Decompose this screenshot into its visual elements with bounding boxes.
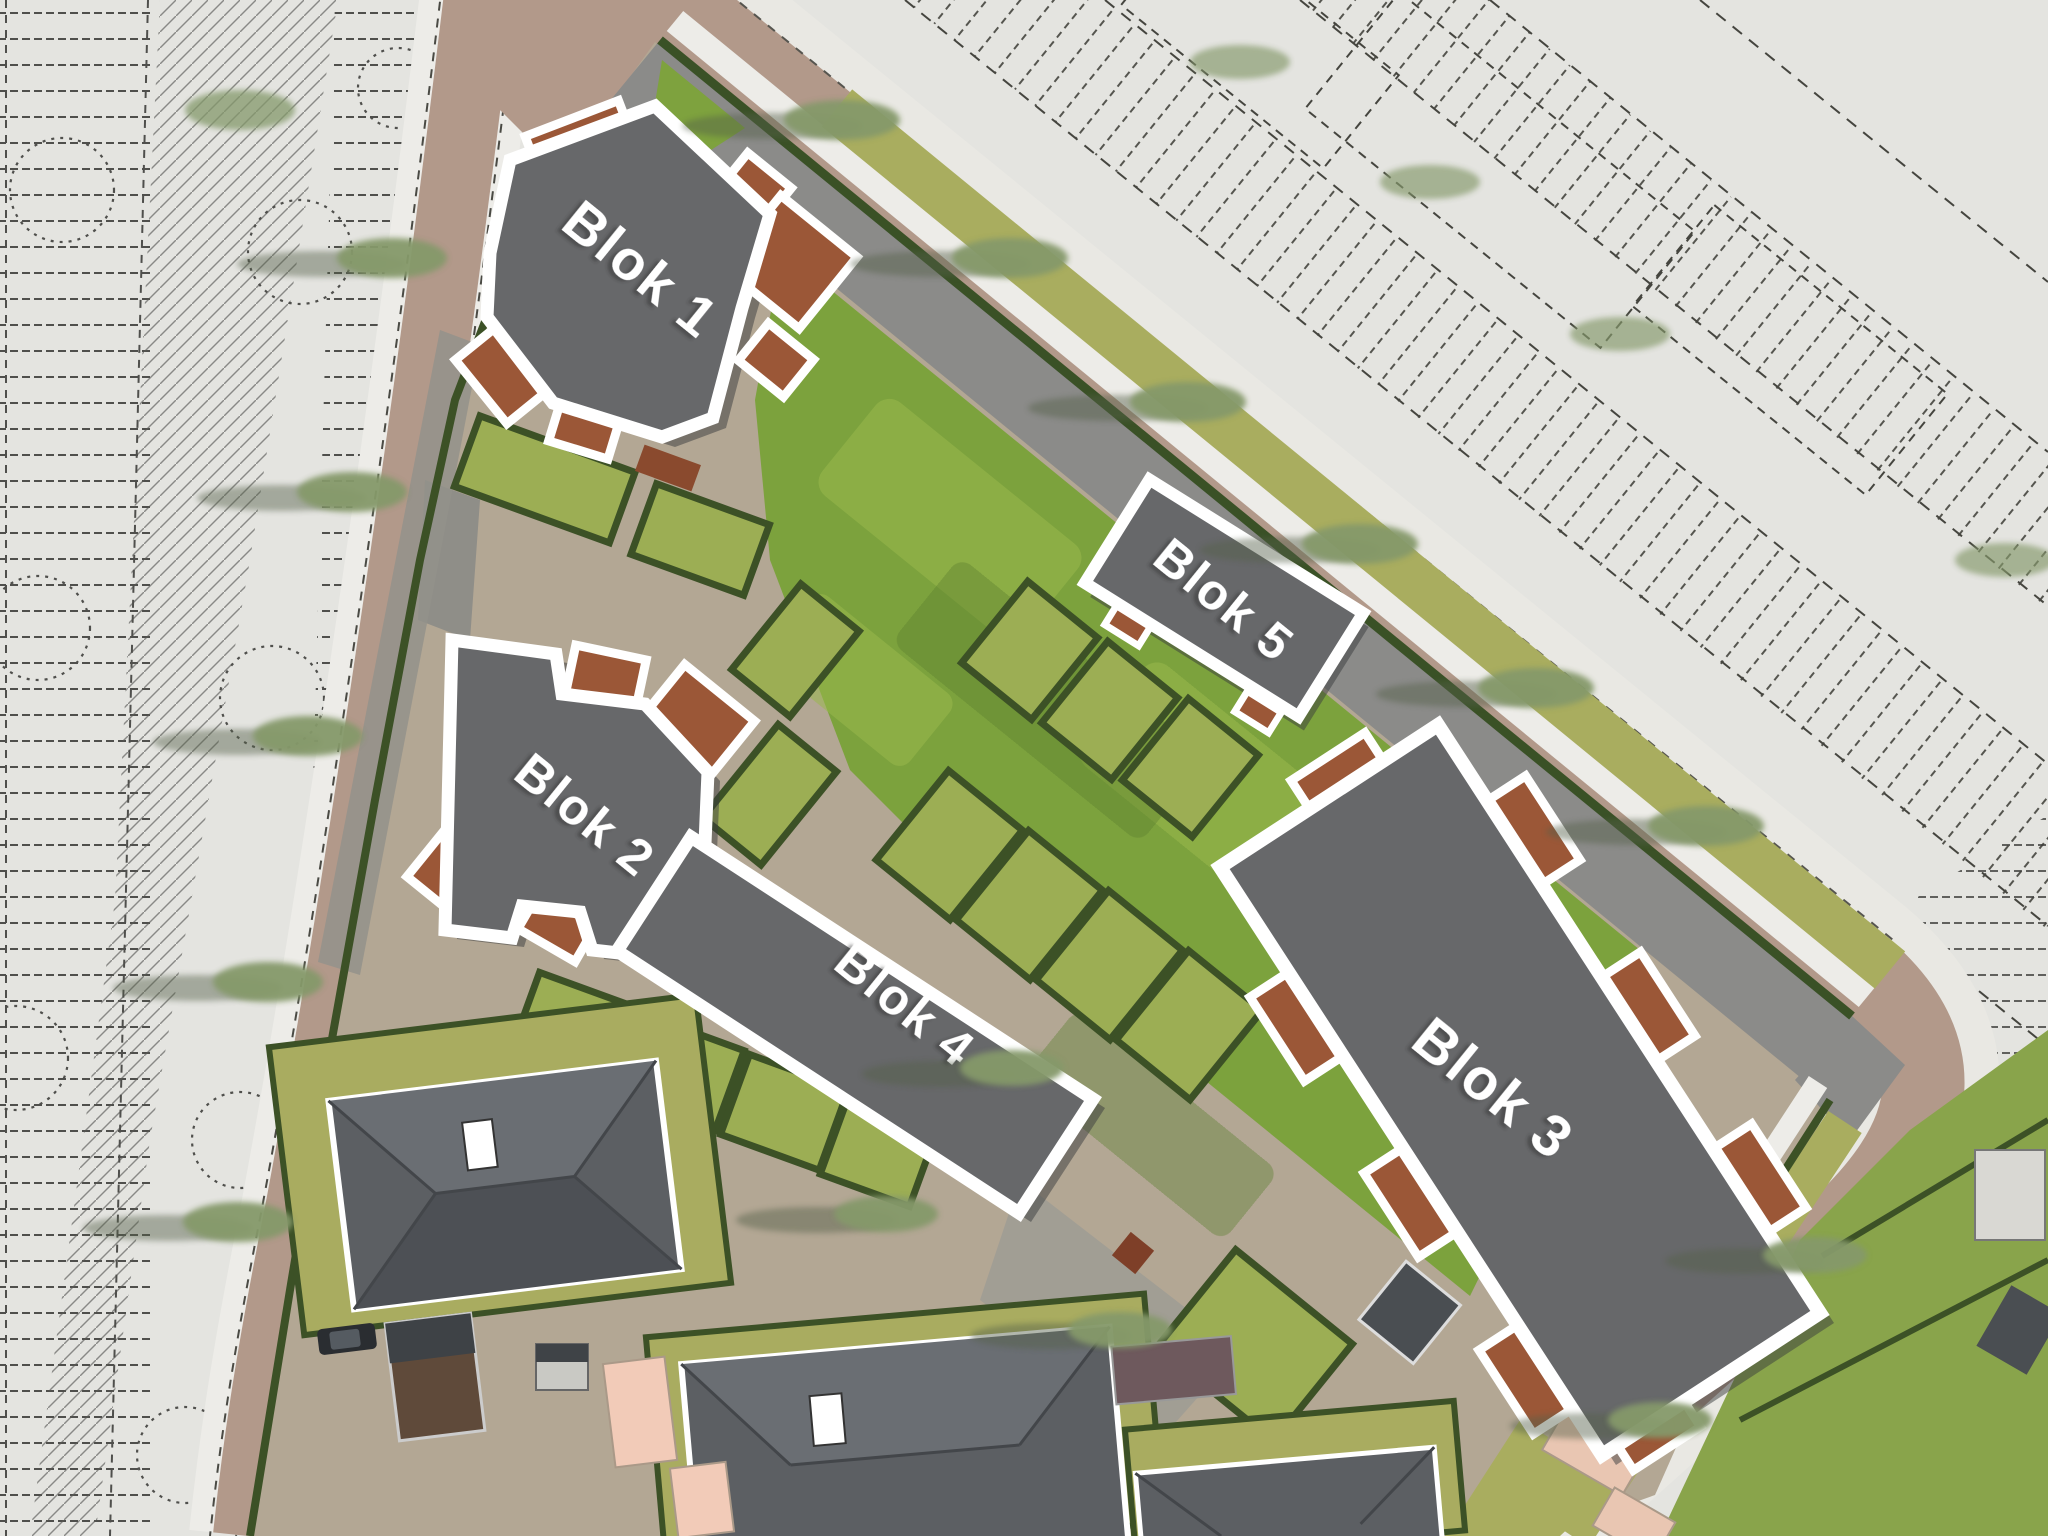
site-plan-canvas: Blok 1 Blok 2 Blok 5 Blok 4 [0,0,2048,1536]
site-plan-svg: Blok 1 Blok 2 Blok 5 Blok 4 [0,0,2048,1536]
existing-house-west [328,1061,681,1310]
